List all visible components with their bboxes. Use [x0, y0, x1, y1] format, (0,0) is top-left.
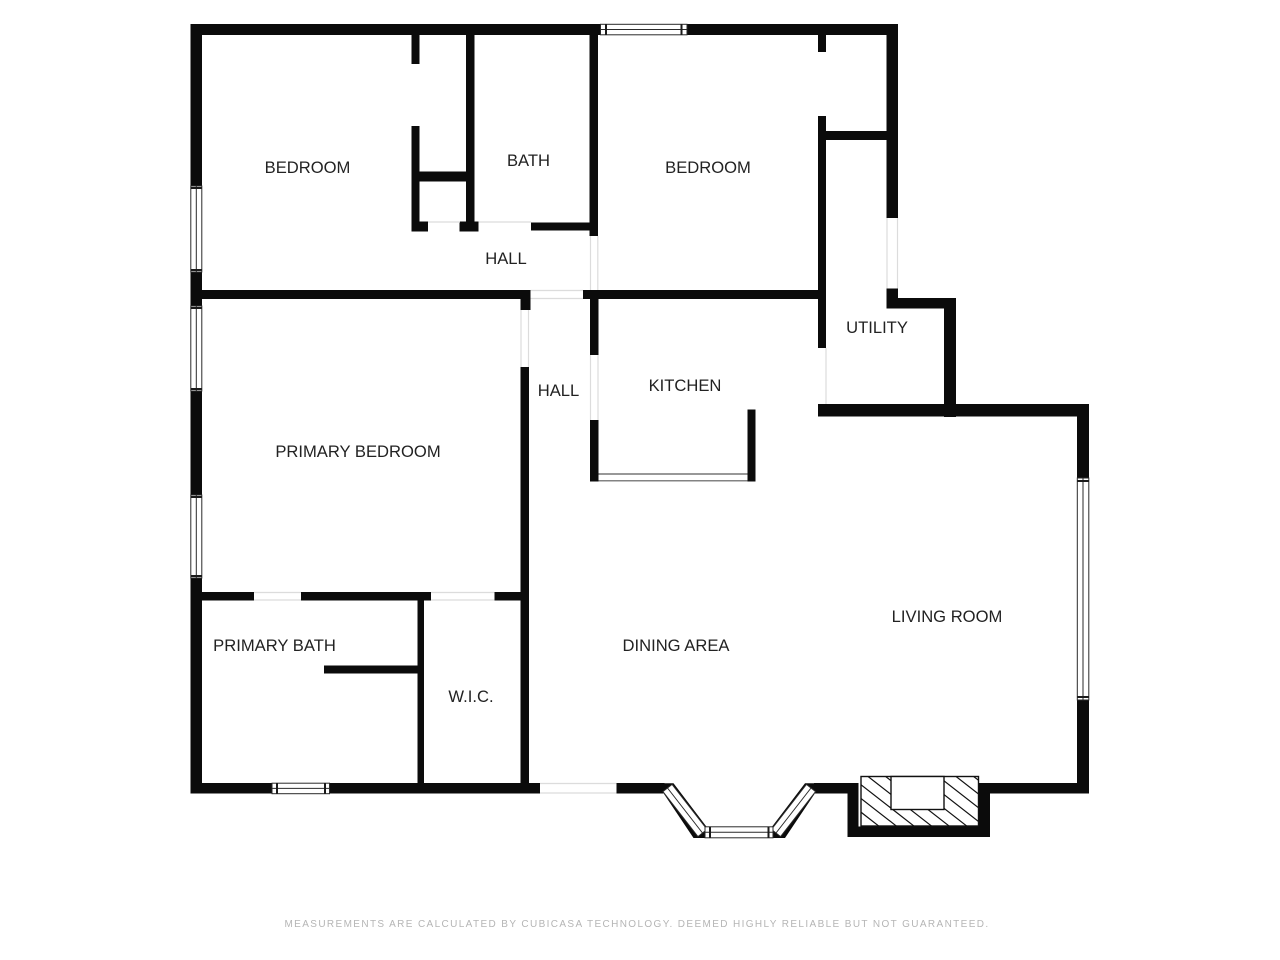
svg-text:PRIMARY BATH: PRIMARY BATH — [213, 636, 336, 655]
svg-text:BATH: BATH — [507, 151, 550, 170]
svg-text:UTILITY: UTILITY — [846, 318, 908, 337]
svg-text:LIVING ROOM: LIVING ROOM — [892, 607, 1003, 626]
svg-text:MEASUREMENTS ARE CALCULATED BY: MEASUREMENTS ARE CALCULATED BY CUBICASA … — [284, 919, 989, 930]
svg-text:HALL: HALL — [538, 381, 580, 400]
svg-text:BEDROOM: BEDROOM — [265, 158, 351, 177]
svg-text:KITCHEN: KITCHEN — [649, 376, 722, 395]
svg-text:PRIMARY BEDROOM: PRIMARY BEDROOM — [275, 442, 440, 461]
svg-text:DINING AREA: DINING AREA — [623, 636, 731, 655]
svg-text:HALL: HALL — [485, 249, 527, 268]
svg-text:BEDROOM: BEDROOM — [665, 158, 751, 177]
svg-text:W.I.C.: W.I.C. — [448, 687, 493, 706]
